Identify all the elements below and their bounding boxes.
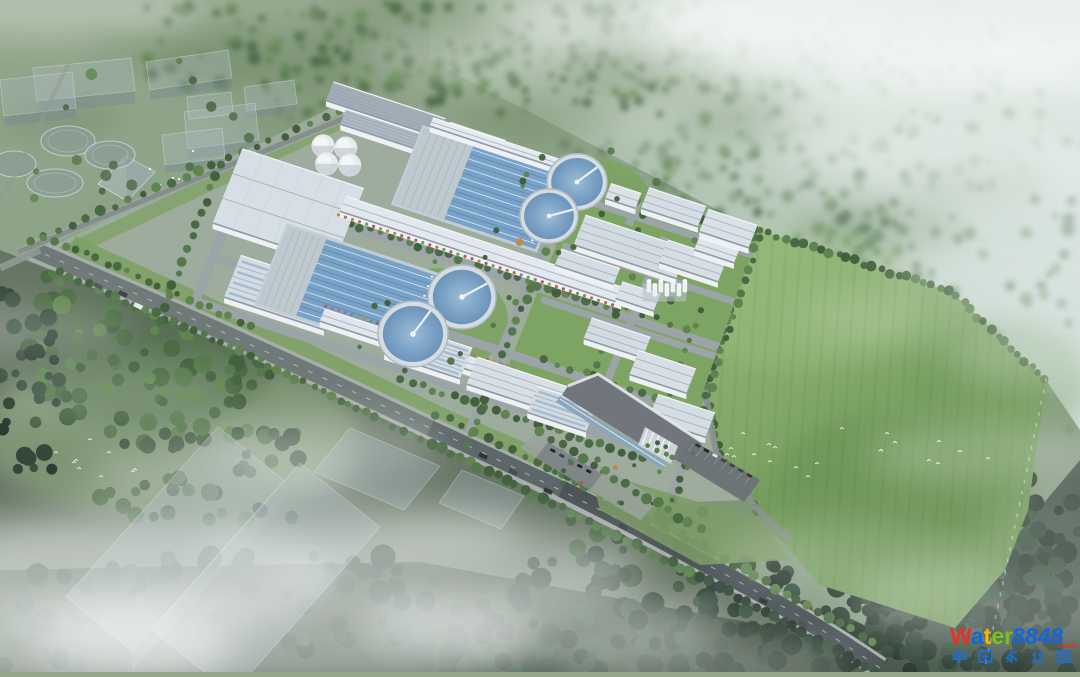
svg-text:.com: .com bbox=[1057, 640, 1077, 650]
svg-text:Water: Water bbox=[950, 623, 1013, 649]
svg-text:8848: 8848 bbox=[1012, 623, 1063, 649]
